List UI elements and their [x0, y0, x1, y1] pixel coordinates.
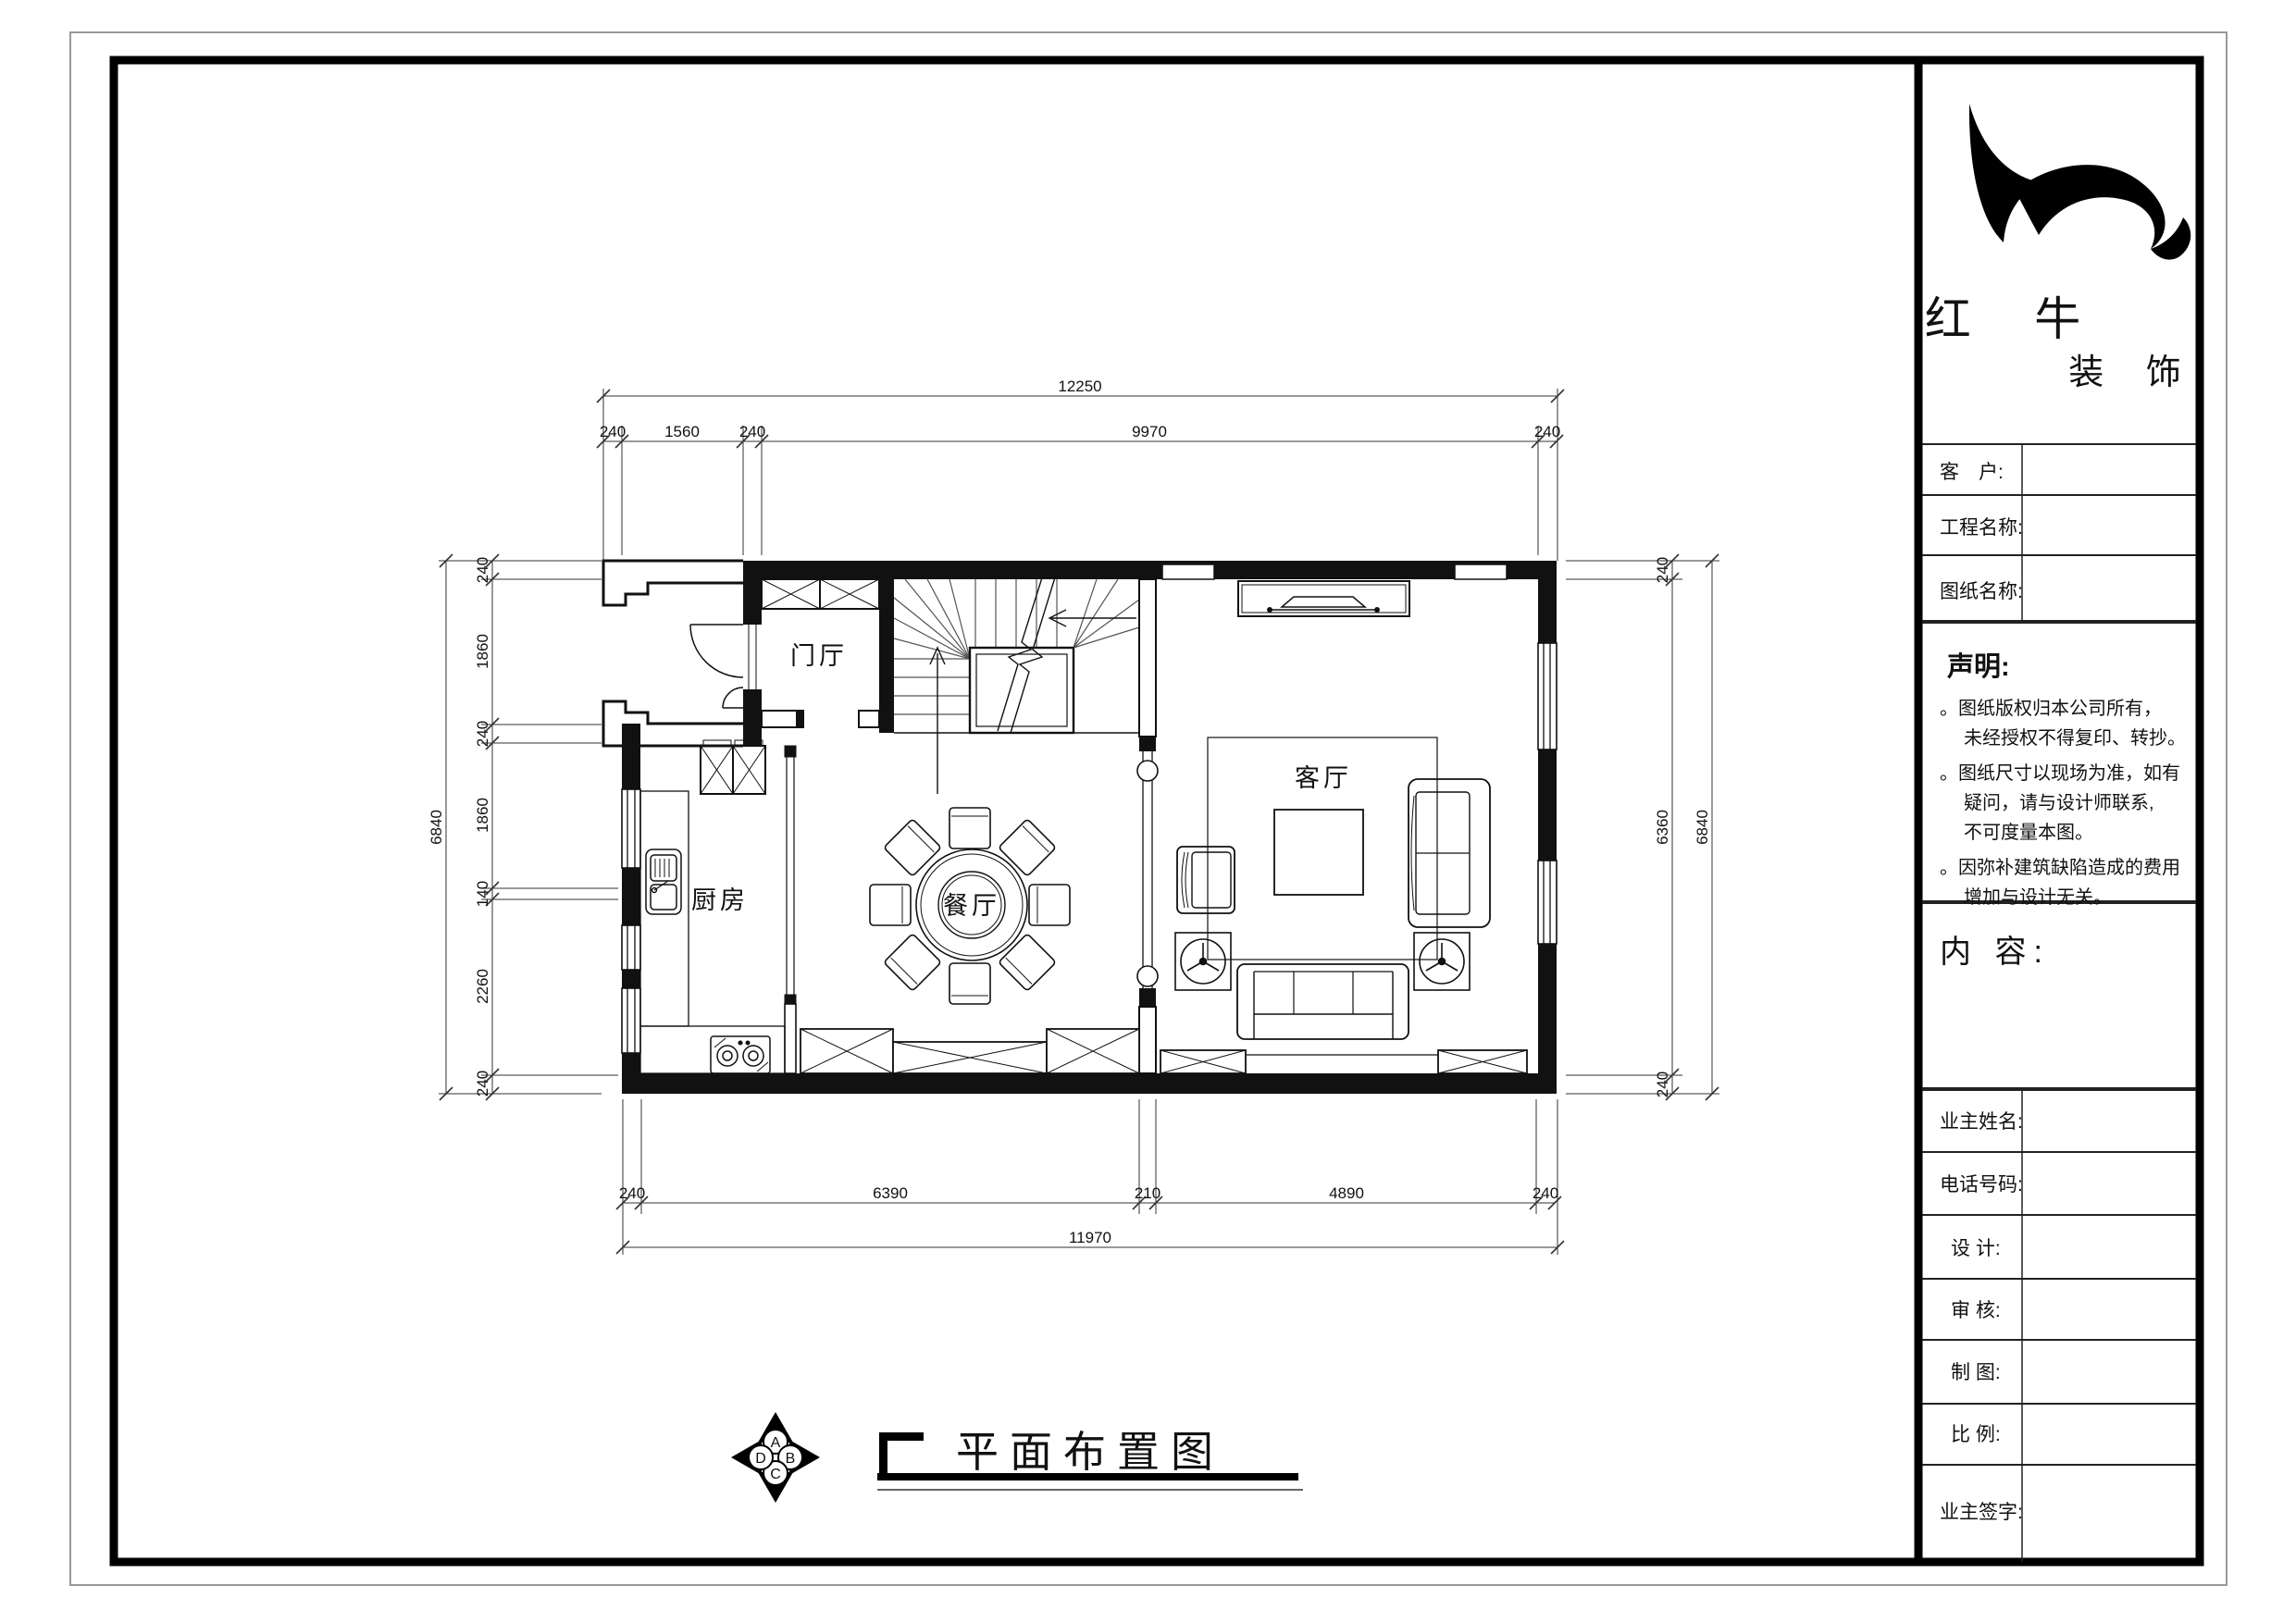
dim-label: 1560	[664, 423, 700, 440]
kitchen-sink	[646, 849, 681, 914]
drawing-title: 平面布置图	[956, 1429, 1224, 1476]
customer-label: 客 户:	[1940, 462, 2004, 483]
company-logo: 红 牛 装 饰	[1925, 104, 2198, 392]
stair-up-arrow	[930, 648, 945, 794]
title-block: 红 牛 装 饰 客 户: 工程名称: 图纸名称: 声明: 。图纸版权归本公司所有…	[1922, 104, 2198, 1562]
kitchen-sliding-door	[785, 746, 796, 1073]
title-block-grid	[1922, 444, 2196, 1562]
side-table-left	[1175, 933, 1231, 990]
column-circle	[1137, 761, 1158, 781]
statement-line: 增加与设计无关。	[1964, 886, 2112, 908]
compass-letter-c: C	[770, 1467, 781, 1482]
dim-label: 240	[600, 423, 626, 440]
company-name: 红 牛	[1925, 293, 2107, 345]
sofa-right	[1409, 779, 1490, 927]
dim-label: 240	[619, 1184, 645, 1202]
dining-chair	[949, 808, 990, 849]
tv-icon	[1268, 597, 1379, 612]
statement-line: 。图纸版权归本公司所有，	[1940, 698, 2162, 719]
scale-label: 比 例:	[1951, 1424, 2001, 1445]
statement-section: 声明: 。图纸版权归本公司所有， 未经授权不得复印、转抄。 。图纸尺寸以现场为准…	[1940, 651, 2186, 908]
dining-chair	[949, 963, 990, 1004]
bay-window-box	[1160, 1050, 1246, 1073]
dim-label: 240	[739, 423, 765, 440]
window-right-2	[1538, 861, 1557, 944]
room-label-kitchen: 厨房	[691, 886, 749, 914]
dim-label: 2260	[474, 969, 491, 1004]
room-label-foyer: 门厅	[790, 642, 848, 670]
dim-label: 6840	[1694, 810, 1711, 845]
project-name-label: 工程名称:	[1940, 517, 2023, 539]
dim-label: 210	[1135, 1184, 1160, 1202]
stair-break-line	[998, 572, 1055, 733]
tv-cabinet	[1238, 581, 1409, 616]
owner-signature-label: 业主签字:	[1940, 1502, 2023, 1523]
dining-living-wall	[1137, 579, 1158, 1073]
page-border	[70, 32, 2227, 1585]
wall-notch	[1162, 564, 1214, 579]
living-room	[1175, 581, 1490, 1039]
statement-title: 声明:	[1947, 651, 2010, 682]
owner-name-label: 业主姓名:	[1940, 1111, 2023, 1133]
dim-label: 240	[1654, 557, 1671, 583]
dim-label: 1860	[474, 634, 491, 669]
drawing-name-label: 图纸名称:	[1940, 581, 2023, 602]
sofa-bottom	[1237, 964, 1409, 1039]
foyer-closet	[762, 579, 879, 609]
room-label-dining: 餐厅	[943, 892, 1000, 920]
cad-canvas: 红 牛 装 饰 客 户: 工程名称: 图纸名称: 声明: 。图纸版权归本公司所有…	[0, 0, 2296, 1623]
dim-label: 4890	[1329, 1184, 1364, 1202]
drawing-sheet: 红 牛 装 饰 客 户: 工程名称: 图纸名称: 声明: 。图纸版权归本公司所有…	[0, 0, 2296, 1623]
dim-label: 240	[474, 1071, 491, 1096]
dim-right: 240 6360 240 6840	[1566, 554, 1719, 1100]
dim-label: 6390	[873, 1184, 908, 1202]
dim-label: 1860	[474, 798, 491, 833]
dim-label: 6840	[428, 810, 445, 845]
drawing-title-block: 平面布置图	[877, 1429, 1303, 1490]
window-left-1	[622, 789, 640, 868]
phone-label: 电话号码:	[1940, 1174, 2023, 1196]
design-label: 设 计:	[1951, 1238, 2001, 1259]
stair-direction-arrow	[1049, 610, 1136, 626]
dim-left: 6840 240 1860 240 1860 140 2260 240	[428, 554, 618, 1100]
dim-label: 11970	[1069, 1229, 1111, 1246]
compass-letter-b: B	[786, 1451, 796, 1467]
statement-line: 未经授权不得复印、转抄。	[1964, 727, 2186, 749]
room-label-living: 客厅	[1295, 764, 1352, 792]
foyer-bottom-wall	[762, 711, 879, 727]
bay-window-box	[1047, 1029, 1139, 1073]
dim-label: 140	[474, 881, 491, 907]
draft-label: 制 图:	[1951, 1362, 2001, 1383]
dim-label: 12250	[1058, 378, 1101, 395]
dim-label: 240	[1533, 1184, 1558, 1202]
bay-window-box	[1438, 1050, 1527, 1073]
armchair	[1177, 847, 1235, 913]
dim-label: 9970	[1132, 423, 1167, 440]
window-left-3	[622, 988, 640, 1053]
wall-notch	[1455, 564, 1507, 579]
statement-line: 疑问，请与设计师联系,	[1964, 792, 2154, 813]
logo-swoosh-icon	[1969, 104, 2191, 260]
dining-chair	[870, 885, 911, 925]
compass-letter-a: A	[771, 1435, 781, 1451]
content-label: 内 容:	[1940, 935, 2050, 970]
dim-top: 12250 240 1560 240 9970 240	[597, 378, 1564, 561]
side-table-right	[1414, 933, 1470, 990]
dim-label: 6360	[1654, 810, 1671, 845]
window-right-1	[1538, 643, 1557, 750]
kitchen-stove	[711, 1036, 770, 1073]
title-bracket-icon	[879, 1432, 924, 1475]
kitchen-counter	[640, 791, 785, 1073]
dining-chair	[1029, 885, 1070, 925]
staircase	[894, 572, 1139, 794]
bay-window-box	[893, 1042, 1047, 1073]
dim-label: 240	[474, 721, 491, 747]
bay-window-box	[800, 1029, 893, 1073]
column-circle	[1137, 966, 1158, 986]
window-left-2	[622, 925, 640, 970]
coffee-table	[1274, 810, 1363, 895]
company-name-2: 装 饰	[2068, 353, 2198, 392]
bottom-bay-windows	[800, 1029, 1527, 1073]
floor-plan: 门厅 厨房 餐厅 客厅	[603, 561, 1557, 1094]
dim-bottom: 240 6390 210 4890 240 11970	[616, 1099, 1564, 1255]
statement-line: 不可度量本图。	[1964, 822, 2093, 843]
porch-outline	[603, 561, 743, 746]
compass-letter-d: D	[755, 1451, 766, 1467]
dim-label: 240	[474, 557, 491, 583]
dim-label: 240	[1534, 423, 1560, 440]
review-label: 审 核:	[1951, 1300, 2001, 1321]
statement-line: 。因弥补建筑缺陷造成的费用	[1940, 857, 2180, 878]
statement-line: 。图纸尺寸以现场为准，如有	[1940, 762, 2180, 784]
kitchen-cabinets	[701, 740, 765, 794]
compass-icon: A B C D	[731, 1412, 820, 1503]
dim-label: 240	[1654, 1072, 1671, 1097]
